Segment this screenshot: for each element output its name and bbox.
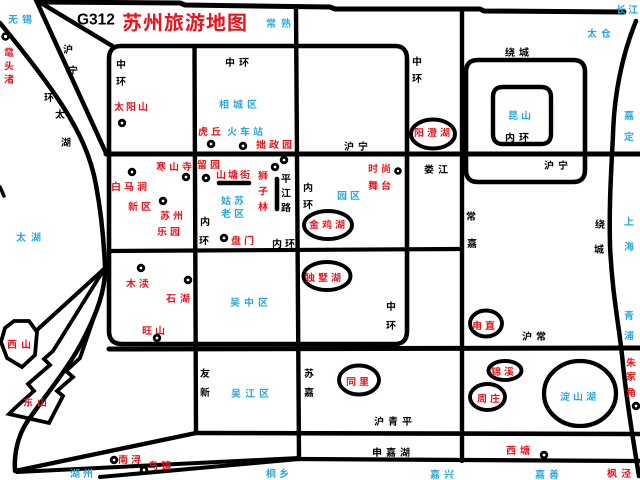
svg-text:G312: G312 — [77, 12, 115, 29]
